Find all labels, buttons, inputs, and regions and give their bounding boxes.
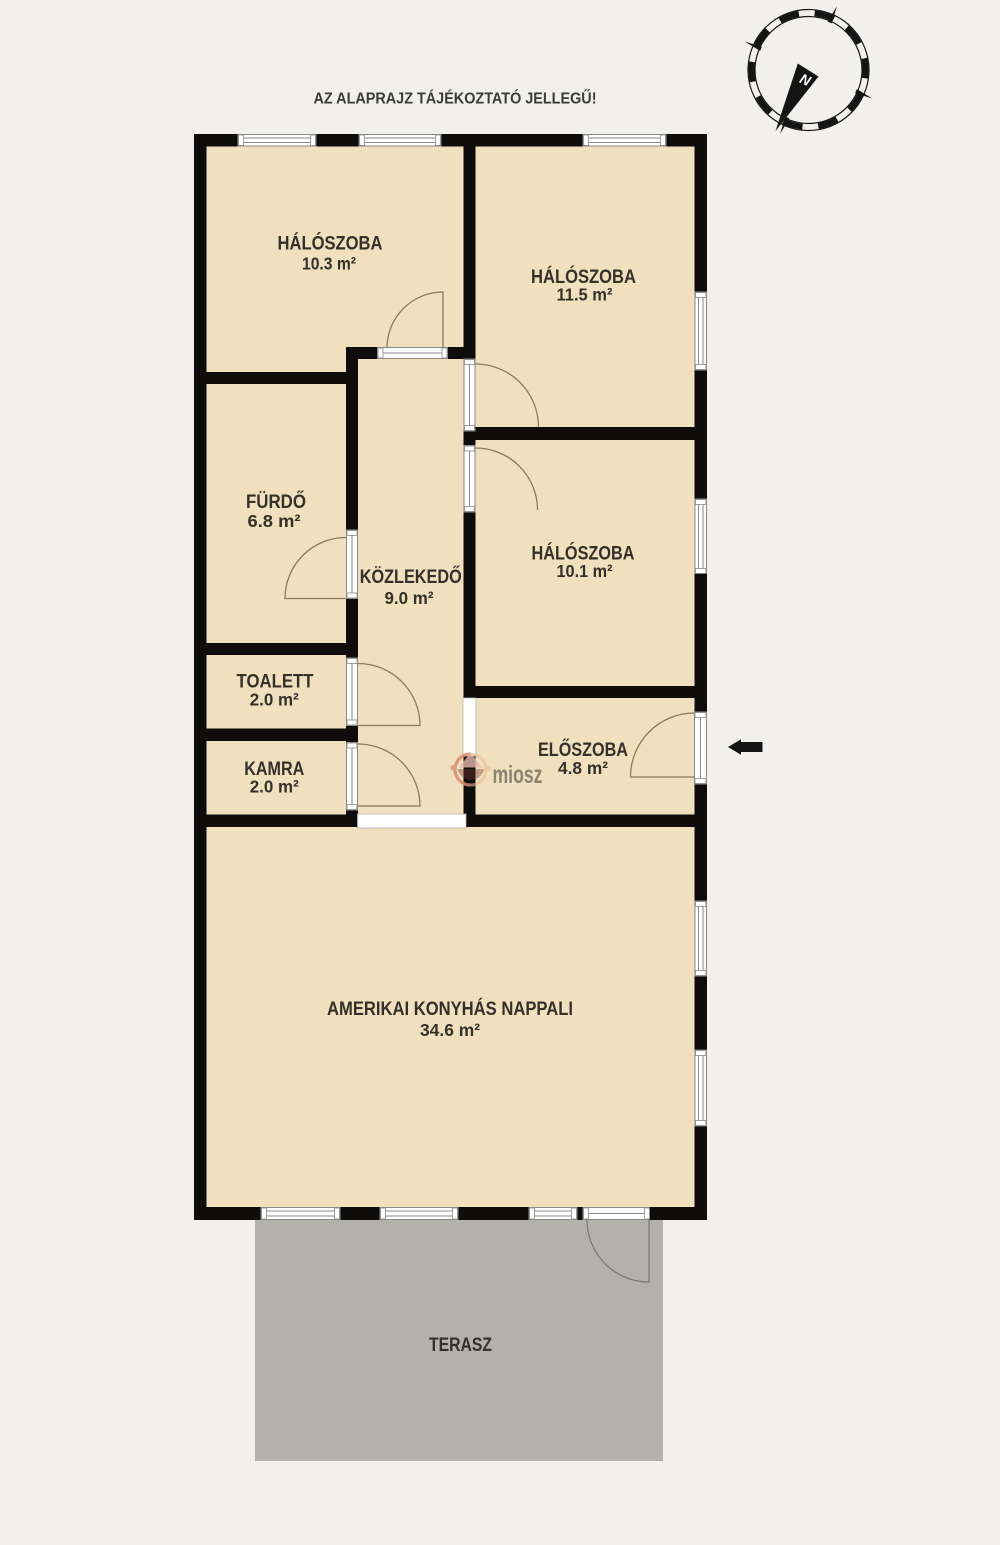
- svg-text:2.0 m²: 2.0 m²: [250, 690, 299, 710]
- svg-text:KÖZLEKEDŐ: KÖZLEKEDŐ: [360, 566, 462, 588]
- svg-text:6.8 m²: 6.8 m²: [248, 511, 301, 531]
- svg-text:4.8 m²: 4.8 m²: [558, 758, 608, 778]
- svg-text:10.3 m²: 10.3 m²: [302, 254, 356, 274]
- svg-text:AMERIKAI KONYHÁS NAPPALI: AMERIKAI KONYHÁS NAPPALI: [327, 998, 573, 1020]
- svg-text:9.0 m²: 9.0 m²: [385, 588, 434, 608]
- svg-text:34.6 m²: 34.6 m²: [420, 1020, 480, 1040]
- svg-text:miosz: miosz: [493, 761, 543, 789]
- svg-text:11.5 m²: 11.5 m²: [557, 285, 613, 305]
- svg-text:2.0 m²: 2.0 m²: [250, 777, 299, 797]
- svg-text:10.1 m²: 10.1 m²: [557, 561, 613, 581]
- svg-text:HÁLÓSZOBA: HÁLÓSZOBA: [278, 233, 383, 255]
- svg-text:TERASZ: TERASZ: [429, 1335, 492, 1356]
- svg-text:FÜRDŐ: FÜRDŐ: [246, 491, 306, 513]
- svg-text:AZ ALAPRAJZ TÁJÉKOZTATÓ JELLEG: AZ ALAPRAJZ TÁJÉKOZTATÓ JELLEGŰ!: [314, 89, 597, 108]
